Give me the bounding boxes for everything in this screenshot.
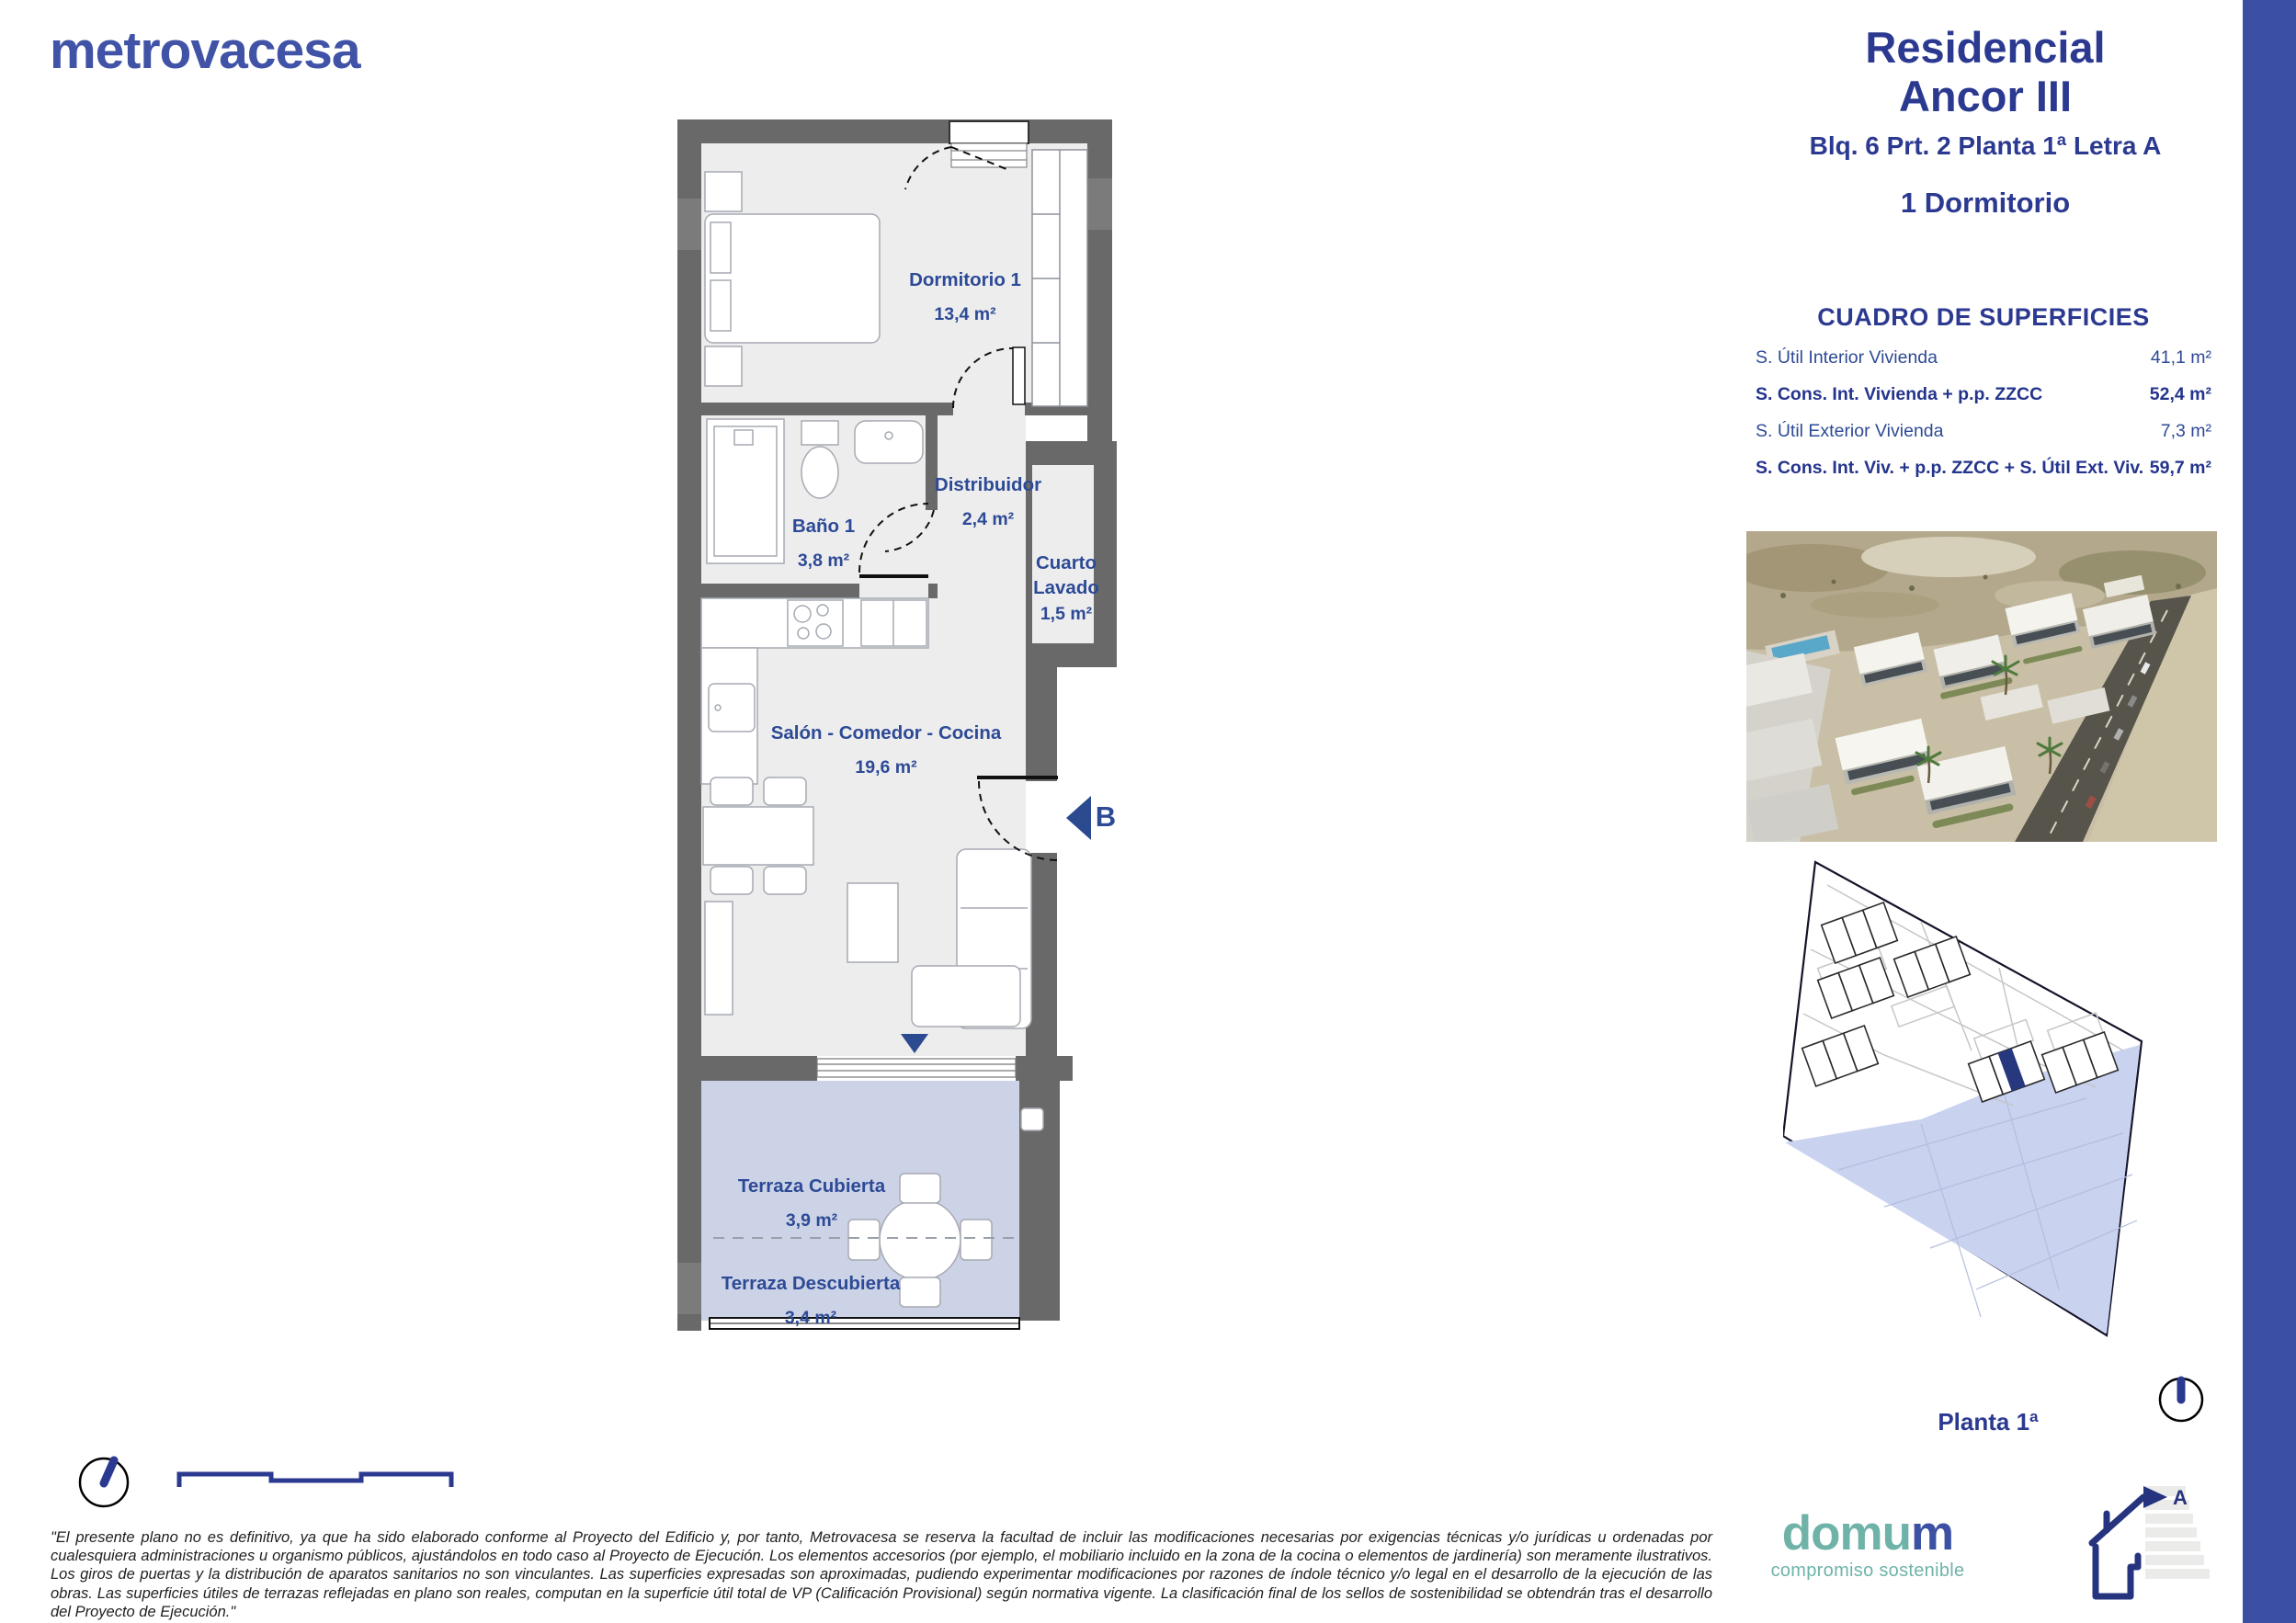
terrace-chair	[900, 1174, 940, 1203]
room-label-terraza-cubierta: Terraza Cubierta 3,9 m²	[738, 1175, 885, 1231]
surfaces-table: CUADRO DE SUPERFICIES S. Útil Interior V…	[1754, 303, 2213, 479]
surface-label: S. Cons. Int. Viv. + p.p. ZZCC + S. Útil…	[1756, 458, 2143, 479]
table-row: S. Cons. Int. Viv. + p.p. ZZCC + S. Útil…	[1754, 458, 2213, 479]
pillow	[710, 222, 731, 273]
surface-value: 7,3 m²	[2161, 421, 2211, 442]
page-title-line2: Ancor III	[1757, 73, 2213, 121]
sofa-chaise	[912, 966, 1020, 1027]
terrace-chair	[900, 1277, 940, 1307]
energy-rating-letter: A	[2173, 1486, 2188, 1509]
dwelling-type: 1 Dormitorio	[1757, 187, 2213, 220]
surface-value: 52,4 m²	[2150, 384, 2211, 405]
surface-value: 41,1 m²	[2151, 347, 2211, 369]
room-label-lavado: Cuarto Lavado 1,5 m²	[1020, 551, 1112, 625]
compass-icon	[2155, 1374, 2211, 1429]
domum-word-accent: m	[1911, 1506, 1953, 1561]
compass-icon	[72, 1450, 136, 1515]
toilet-bowl	[801, 447, 838, 498]
table-row: S. Útil Exterior Vivienda 7,3 m²	[1754, 421, 2213, 442]
entry-recess	[1026, 781, 1057, 853]
window-box	[949, 121, 1029, 143]
shower-drain	[734, 430, 753, 445]
room-label-dormitorio: Dormitorio 1 13,4 m²	[909, 268, 1021, 325]
planter	[705, 902, 733, 1015]
site-plan-caption: Planta 1ª	[1938, 1408, 2038, 1436]
surface-label: S. Útil Interior Vivienda	[1756, 347, 1938, 369]
domum-logo: domum compromiso sostenible	[1757, 1509, 1978, 1580]
room-label-terraza-descubierta: Terraza Descubierta 3,4 m²	[722, 1272, 900, 1329]
header-block: Residencial Ancor III Blq. 6 Prt. 2 Plan…	[1757, 24, 2213, 220]
room-label-distribuidor: Distribuidor 2,4 m²	[935, 473, 1041, 530]
site-plan	[1783, 857, 2178, 1441]
aerial-photo	[1746, 531, 2217, 842]
chair	[710, 777, 753, 805]
nightstand	[705, 172, 742, 211]
energy-rating-icon: A	[2079, 1475, 2212, 1613]
legal-disclaimer: "El presente plano no es definitivo, ya …	[51, 1528, 1712, 1622]
toilet-tank	[801, 421, 838, 445]
chair	[764, 867, 806, 894]
unit-reference: Blq. 6 Prt. 2 Planta 1ª Letra A	[1757, 131, 2213, 161]
page-title-line1: Residencial	[1757, 24, 2213, 73]
scale-bar	[170, 1461, 460, 1493]
chair	[764, 777, 806, 805]
nightstand	[705, 346, 742, 386]
terrace-pillar	[1021, 1108, 1043, 1130]
surface-value: 59,7 m²	[2150, 458, 2211, 479]
domum-word: domu	[1782, 1506, 1911, 1561]
room-label-salon: Salón - Comedor - Cocina 19,6 m²	[771, 721, 1002, 778]
plan-sheet: metrovacesa Residencial Ancor III Blq. 6…	[0, 0, 2296, 1623]
surface-label: S. Cons. Int. Vivienda + p.p. ZZCC	[1756, 384, 2042, 405]
entrance-label: B	[1096, 800, 1116, 834]
entrance-arrow-icon	[1066, 796, 1091, 840]
right-accent-bar	[2243, 0, 2296, 1623]
metrovacesa-logo: metrovacesa	[50, 20, 360, 81]
bedroom-window	[951, 143, 1027, 167]
table-row: S. Cons. Int. Vivienda + p.p. ZZCC 52,4 …	[1754, 384, 2213, 405]
terrace-table	[880, 1199, 960, 1280]
chair	[710, 867, 753, 894]
bathroom-sink	[855, 421, 923, 463]
dining-table	[703, 807, 813, 865]
stove	[788, 600, 843, 646]
surface-label: S. Útil Exterior Vivienda	[1756, 421, 1943, 442]
terrace-chair	[960, 1220, 992, 1260]
surfaces-table-title: CUADRO DE SUPERFICIES	[1754, 303, 2213, 332]
pillow	[710, 280, 731, 331]
domum-tagline: compromiso sostenible	[1757, 1561, 1978, 1580]
wardrobe	[1032, 150, 1087, 406]
room-label-bano: Baño 1 3,8 m²	[792, 515, 855, 572]
terrace-glass-door	[817, 1059, 1016, 1077]
table-row: S. Útil Interior Vivienda 41,1 m²	[1754, 347, 2213, 369]
coffee-table	[847, 883, 898, 962]
